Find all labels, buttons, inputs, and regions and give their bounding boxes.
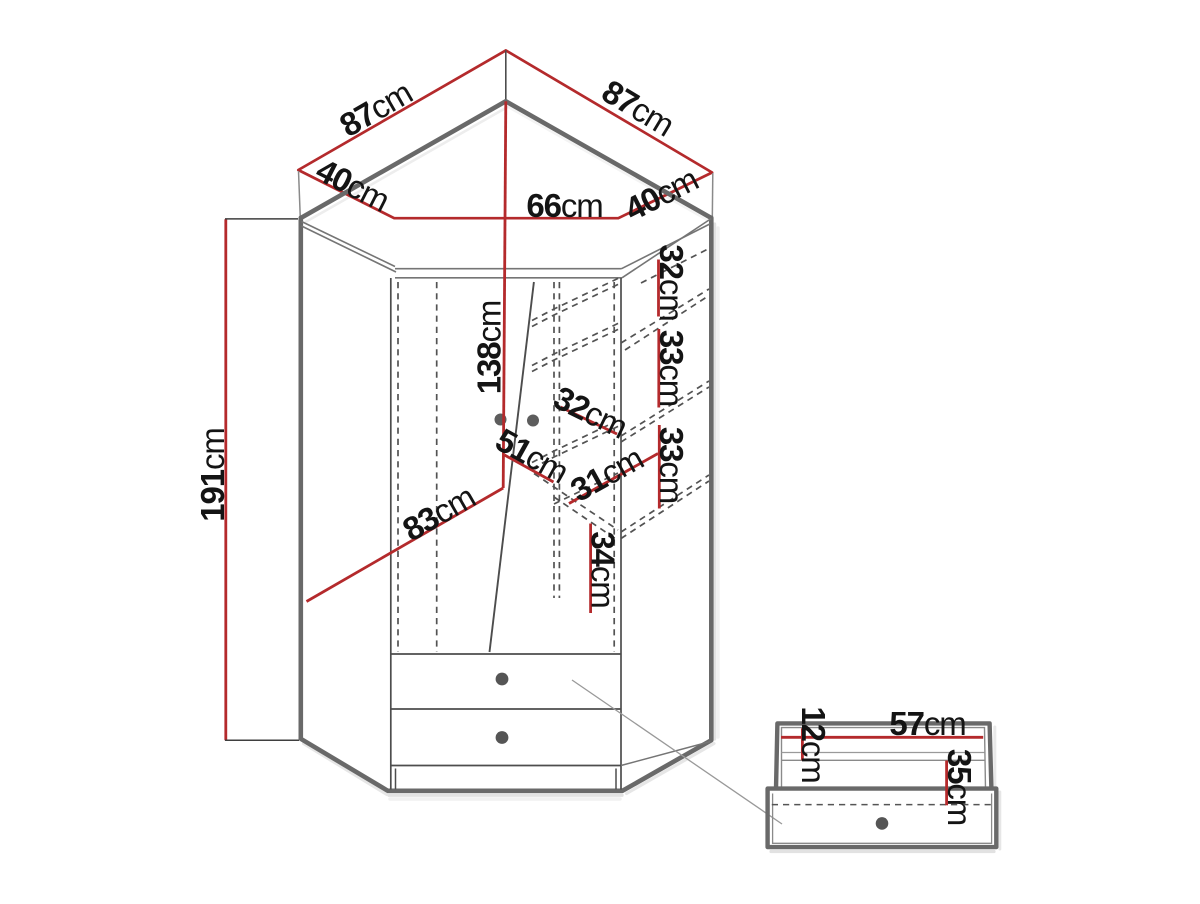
svg-text:32cm: 32cm [653,244,690,320]
svg-text:66cm: 66cm [526,187,602,224]
svg-text:33cm: 33cm [653,427,690,503]
svg-text:34cm: 34cm [584,531,621,607]
svg-text:12cm: 12cm [795,706,832,782]
svg-text:33cm: 33cm [653,330,690,406]
svg-text:191cm: 191cm [194,428,231,522]
svg-text:35cm: 35cm [941,749,978,825]
svg-text:138cm: 138cm [471,301,508,395]
svg-text:57cm: 57cm [889,705,965,742]
